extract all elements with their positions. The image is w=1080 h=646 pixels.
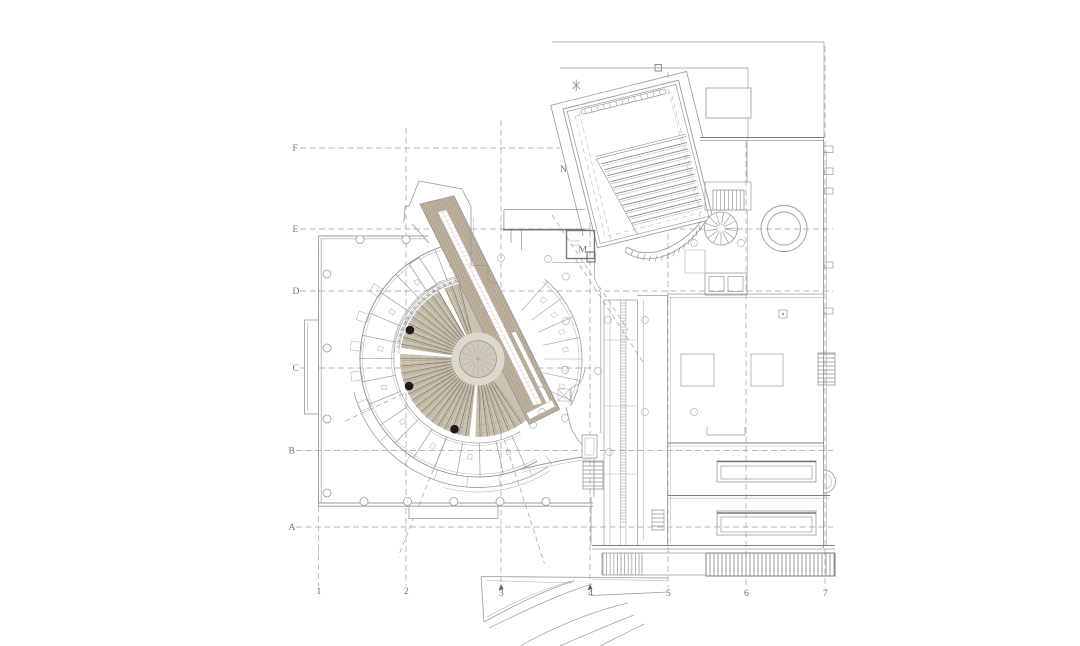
- svg-text:F: F: [293, 144, 298, 154]
- svg-text:E: E: [293, 225, 299, 235]
- svg-text:C: C: [293, 364, 299, 374]
- svg-text:A: A: [289, 523, 296, 533]
- svg-text:5: 5: [666, 589, 671, 599]
- svg-text:6: 6: [744, 589, 749, 599]
- svg-text:7: 7: [823, 589, 828, 599]
- svg-text:3: 3: [499, 589, 504, 599]
- svg-text:B: B: [289, 447, 295, 457]
- svg-text:2: 2: [404, 587, 409, 597]
- svg-text:D: D: [293, 287, 300, 297]
- svg-text:1: 1: [317, 587, 322, 597]
- svg-text:4: 4: [588, 589, 593, 599]
- svg-text:M: M: [579, 246, 588, 256]
- svg-text:N: N: [560, 165, 567, 175]
